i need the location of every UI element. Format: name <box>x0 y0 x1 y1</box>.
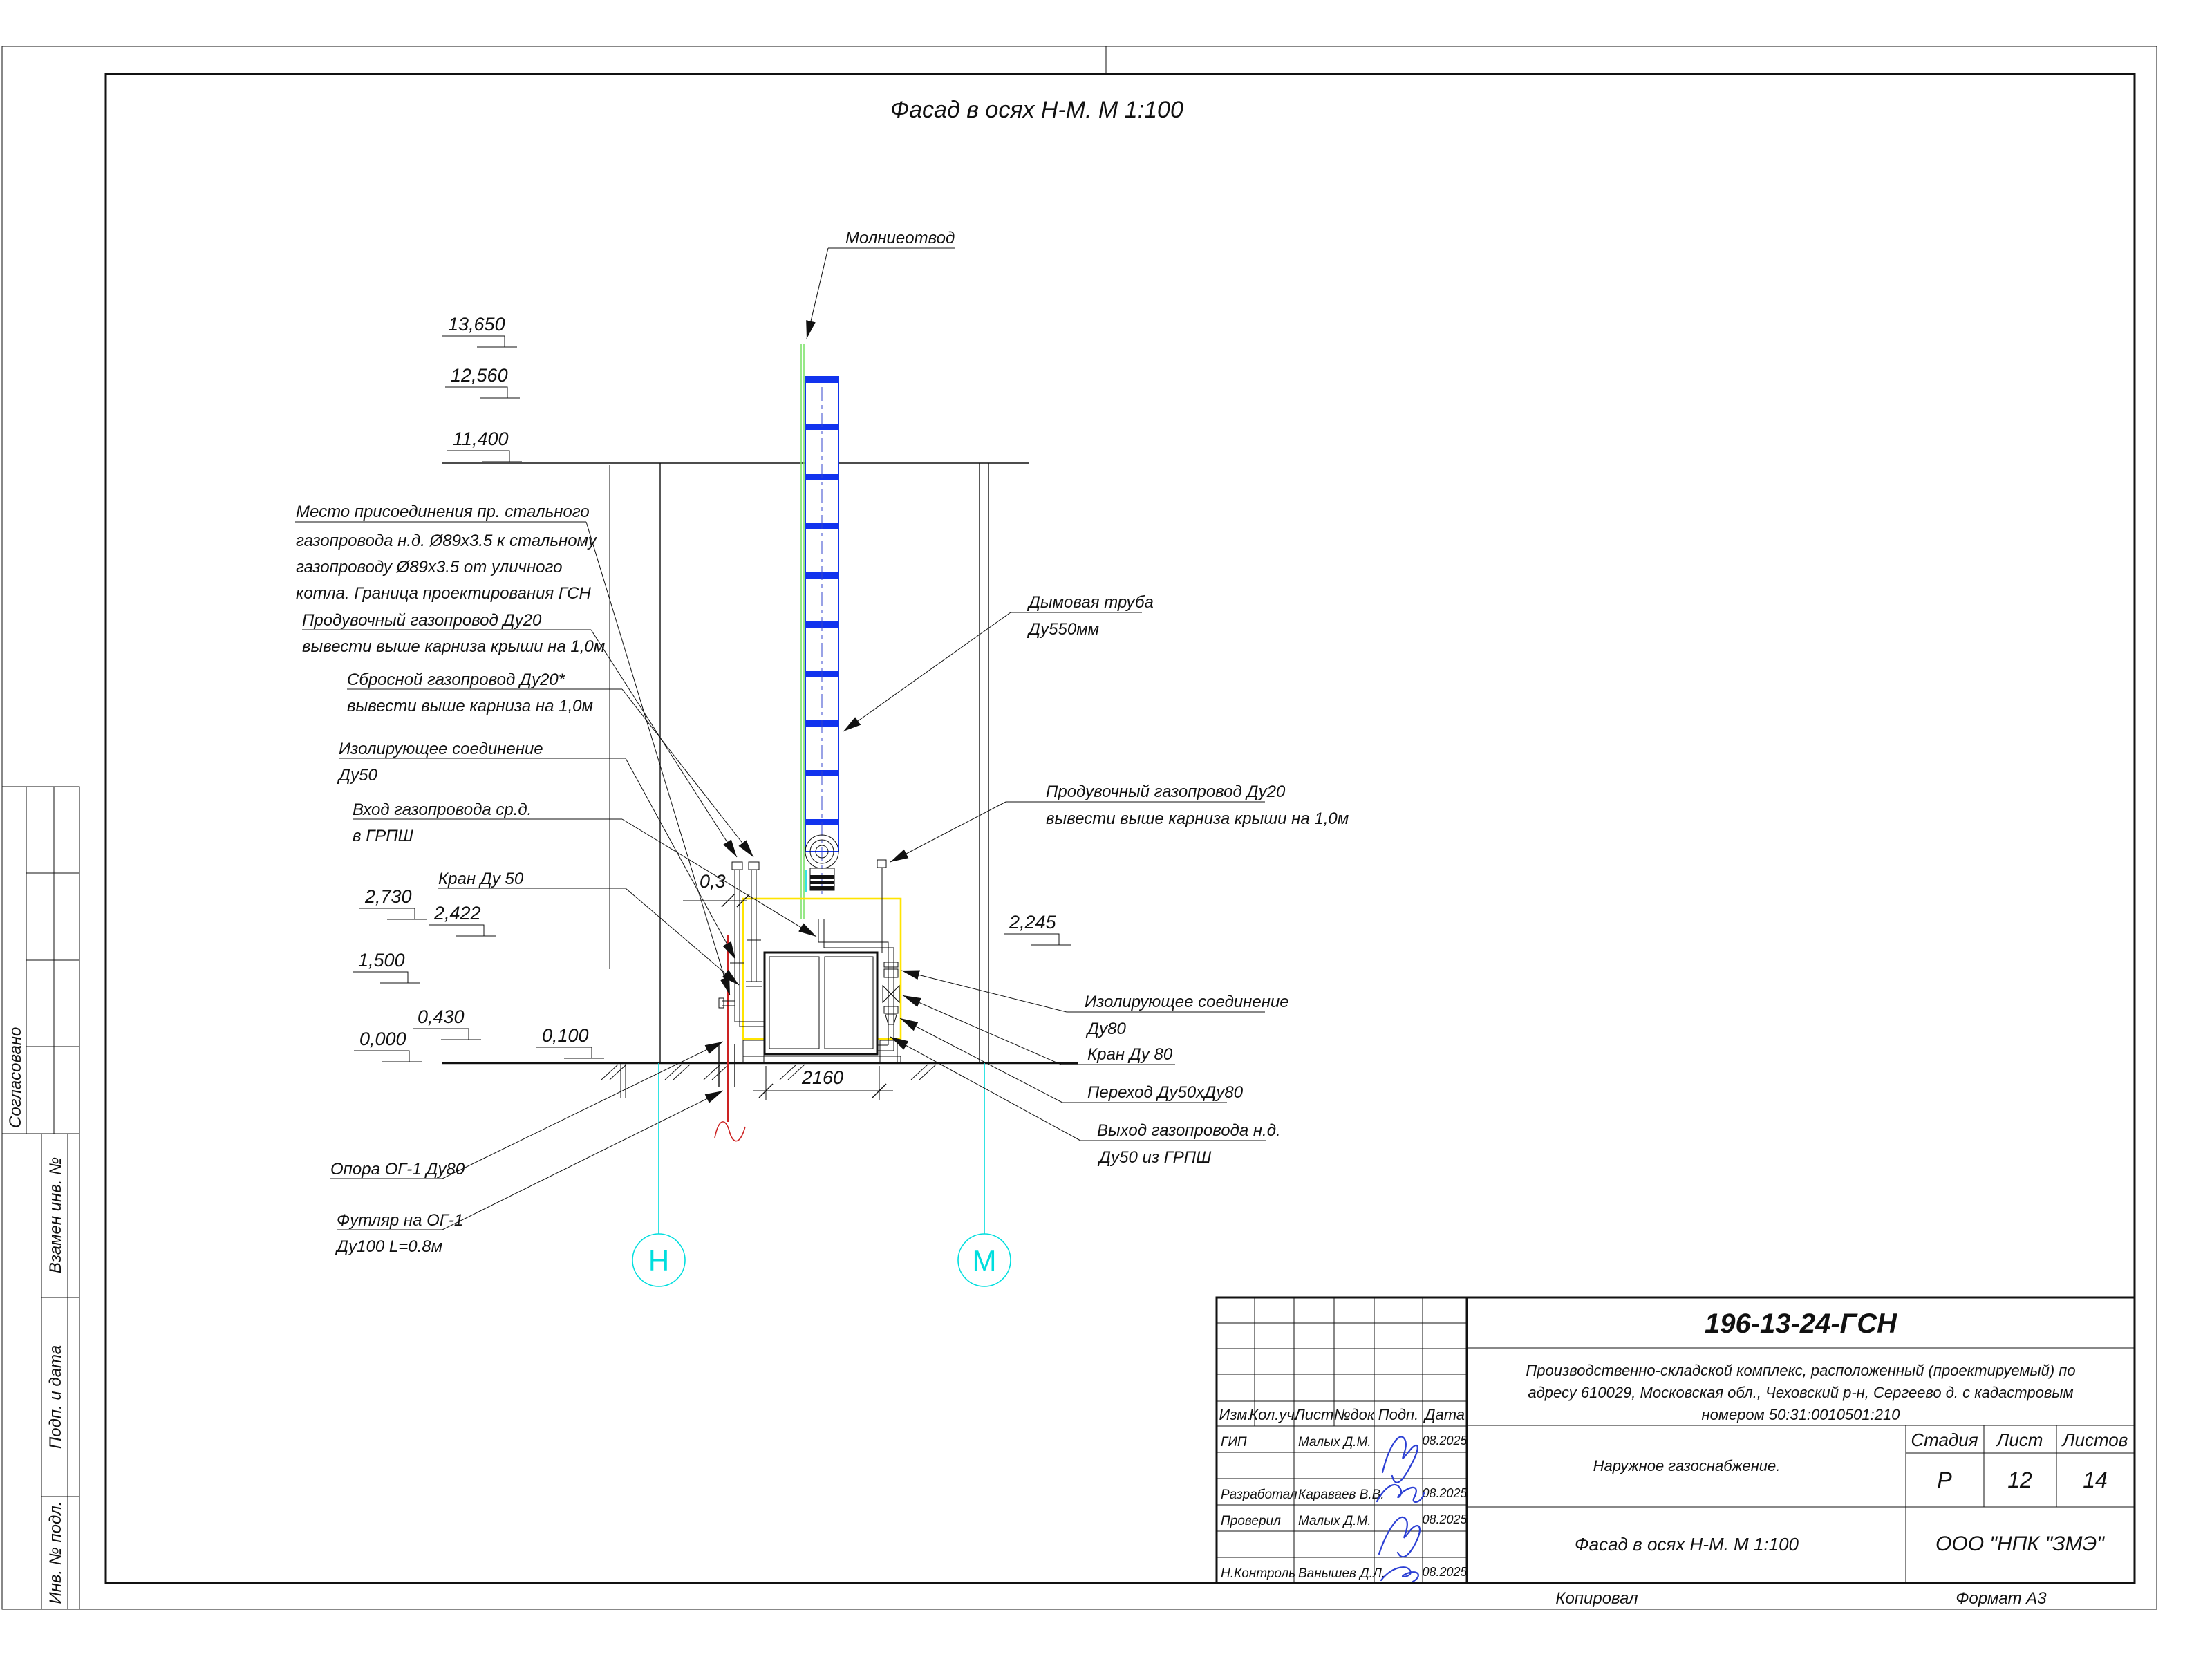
tb-sheets-value: 14 <box>2083 1468 2108 1492</box>
svg-text:Ду50 из ГРПШ: Ду50 из ГРПШ <box>1097 1148 1212 1167</box>
riser-cap <box>749 862 759 870</box>
footer-strip: Копировал Формат А3 <box>1555 1589 2047 1608</box>
facade-drawing: Согласовано Взамен инв. № Подп. и дата И… <box>0 0 2212 1659</box>
tb-header-list: Лист <box>1293 1406 1334 1423</box>
elevation-13650: 13,650 <box>448 314 505 335</box>
chimney-stack <box>801 344 838 919</box>
elevation-1500: 1,500 <box>358 950 405 971</box>
tb-sheet-value: 12 <box>2007 1468 2032 1492</box>
elevation-2422: 2,422 <box>433 903 481 924</box>
tb-header-kol: Кол.уч. <box>1249 1406 1299 1423</box>
dim-2160: 2160 <box>801 1067 843 1088</box>
side-strip-inv-label: Инв. № подл. <box>46 1501 65 1604</box>
anno-purge-right: Продувочный газопровод Ду20 <box>1046 782 1286 801</box>
side-strip-signdate-label: Подп. и дата <box>46 1345 65 1449</box>
tb-role-check: Проверил <box>1221 1514 1281 1528</box>
lightning-rod <box>801 344 804 919</box>
anno-purge: Продувочный газопровод Ду20 <box>302 611 542 630</box>
anno-reducer: Переход Ду50хДу80 <box>1087 1083 1244 1102</box>
insulating-joint-80 <box>884 969 898 977</box>
tb-project-l1: Производственно-складской комплекс, расп… <box>1526 1362 2075 1379</box>
anno-valve-50: Кран Ду 50 <box>438 870 524 888</box>
tb-header-ndok: №док <box>1334 1406 1376 1423</box>
leader-lines <box>295 248 1266 1230</box>
svg-text:вывести выше карниза на 1,0м: вывести выше карниза на 1,0м <box>347 697 593 715</box>
anno-inlet: Вход газопровода ср.д. <box>353 800 532 819</box>
elevation-0100: 0,100 <box>542 1025 589 1046</box>
tb-date-ncontrol: 08.2025 <box>1422 1565 1468 1579</box>
svg-text:Ду550мм: Ду550мм <box>1027 620 1099 639</box>
axis-label-n: Н <box>648 1244 669 1277</box>
svg-text:Ду50: Ду50 <box>337 766 378 785</box>
tb-name-gip: Малых Д.М. <box>1298 1435 1371 1450</box>
anno-insulating-50: Изолирующее соединение <box>339 740 543 758</box>
anno-casing: Футляр на ОГ-1 <box>337 1211 463 1230</box>
anno-insulating-80: Изолирующее соединение <box>1085 993 1289 1011</box>
anno-support: Опора ОГ-1 Ду80 <box>330 1160 465 1179</box>
tb-sheet-title: Фасад в осях Н-М. М 1:100 <box>1575 1534 1799 1555</box>
svg-text:газопровода н.д. Ø89х3.5 к ста: газопровода н.д. Ø89х3.5 к стальному <box>296 532 598 550</box>
tb-name-dev: Караваев В.В. <box>1298 1488 1385 1502</box>
tb-project-l3: номером 50:31:0010501:210 <box>1702 1406 1901 1423</box>
footer-copied: Копировал <box>1555 1589 1638 1608</box>
anno-lightning: Молниеотвод <box>845 229 955 247</box>
tb-header-izm: Изм. <box>1219 1406 1252 1423</box>
riser-cap <box>732 862 742 870</box>
anno-chimney: Дымовая труба <box>1027 593 1154 612</box>
anno-outlet: Выход газопровода н.д. <box>1097 1121 1281 1140</box>
axis-label-m: М <box>973 1244 997 1277</box>
tb-section: Наружное газоснабжение. <box>1593 1457 1781 1474</box>
tb-role-dev: Разработал <box>1221 1488 1297 1502</box>
purge-cap-right <box>877 860 886 868</box>
tb-name-ncontrol: Ванышев Д.Л. <box>1298 1566 1385 1581</box>
tb-role-gip: ГИП <box>1221 1435 1247 1450</box>
elevation-11400: 11,400 <box>453 429 509 449</box>
tb-company: ООО "НПК "ЗМЭ" <box>1935 1533 2105 1555</box>
page-title: Фасад в осях Н-М. М 1:100 <box>890 97 1183 123</box>
signature-check <box>1379 1517 1420 1557</box>
side-strip-agreed-label: Согласовано <box>6 1027 25 1128</box>
tb-header-data: Дата <box>1423 1406 1465 1423</box>
tb-project-l2: адресу 610029, Московская обл., Чеховски… <box>1528 1384 2073 1401</box>
elevation-0430: 0,430 <box>418 1006 465 1027</box>
elevation-0000: 0,000 <box>359 1029 406 1049</box>
svg-text:Ду80: Ду80 <box>1085 1020 1127 1038</box>
ground-hatch <box>601 1065 936 1080</box>
anno-valve-80: Кран Ду 80 <box>1087 1045 1173 1064</box>
svg-text:газопроводу Ø89х3.5 от уличног: газопроводу Ø89х3.5 от уличного <box>296 558 562 577</box>
elevation-12560: 12,560 <box>451 365 508 386</box>
plinth-left <box>743 1040 764 1063</box>
anno-connection: Место присоединения пр. стального <box>296 503 590 521</box>
grpsh-equipment <box>715 860 901 1141</box>
side-strip: Согласовано Взамен инв. № Подп. и дата И… <box>2 787 79 1609</box>
title-block: Изм. Кол.уч. Лист №док Подп. Дата ГИП Ма… <box>1217 1297 2135 1583</box>
foundation-strip <box>743 1056 901 1063</box>
svg-text:Ду100 L=0.8м: Ду100 L=0.8м <box>335 1237 442 1256</box>
tb-date-dev: 08.2025 <box>1422 1486 1468 1500</box>
tb-sheet-header: Лист <box>1996 1430 2043 1450</box>
axes: Н М <box>632 1063 1011 1286</box>
svg-text:вывести выше карниза крыши на: вывести выше карниза крыши на 1,0м <box>302 637 605 656</box>
tb-header-podp: Подп. <box>1378 1406 1419 1423</box>
tb-sheets-header: Листов <box>2061 1430 2128 1450</box>
tb-doc-number: 196-13-24-ГСН <box>1705 1309 1897 1339</box>
signature-ncontrol <box>1381 1567 1418 1582</box>
tb-stage-header: Стадия <box>1911 1430 1978 1450</box>
tb-stage-value: Р <box>1937 1468 1952 1492</box>
anno-relief: Сбросной газопровод Ду20* <box>347 671 565 689</box>
elevation-2245: 2,245 <box>1009 912 1057 932</box>
valve-80 <box>883 986 899 1002</box>
tb-date-gip: 08.2025 <box>1422 1434 1468 1447</box>
tb-date-check: 08.2025 <box>1422 1512 1468 1526</box>
tb-role-ncontrol: Н.Контроль <box>1221 1566 1295 1581</box>
elevation-2730: 2,730 <box>364 886 412 907</box>
side-strip-replace-label: Взамен инв. № <box>46 1157 65 1273</box>
reducer-fitting <box>885 1015 897 1024</box>
drawing-sheet: Согласовано Взамен инв. № Подп. и дата И… <box>0 0 2212 1659</box>
signature-gip <box>1382 1437 1418 1483</box>
svg-text:в ГРПШ: в ГРПШ <box>353 827 414 845</box>
signatures <box>1377 1437 1424 1582</box>
svg-text:котла. Граница проектирования: котла. Граница проектирования ГСН <box>296 584 591 603</box>
grpsh-cabinet <box>765 953 877 1054</box>
tb-name-check: Малых Д.М. <box>1298 1514 1371 1528</box>
svg-text:вывести выше карниза крыши на: вывести выше карниза крыши на 1,0м <box>1046 809 1349 828</box>
pipe-break-symbol <box>715 1122 745 1141</box>
stub-cap <box>719 998 724 1008</box>
footer-format: Формат А3 <box>1956 1589 2047 1608</box>
